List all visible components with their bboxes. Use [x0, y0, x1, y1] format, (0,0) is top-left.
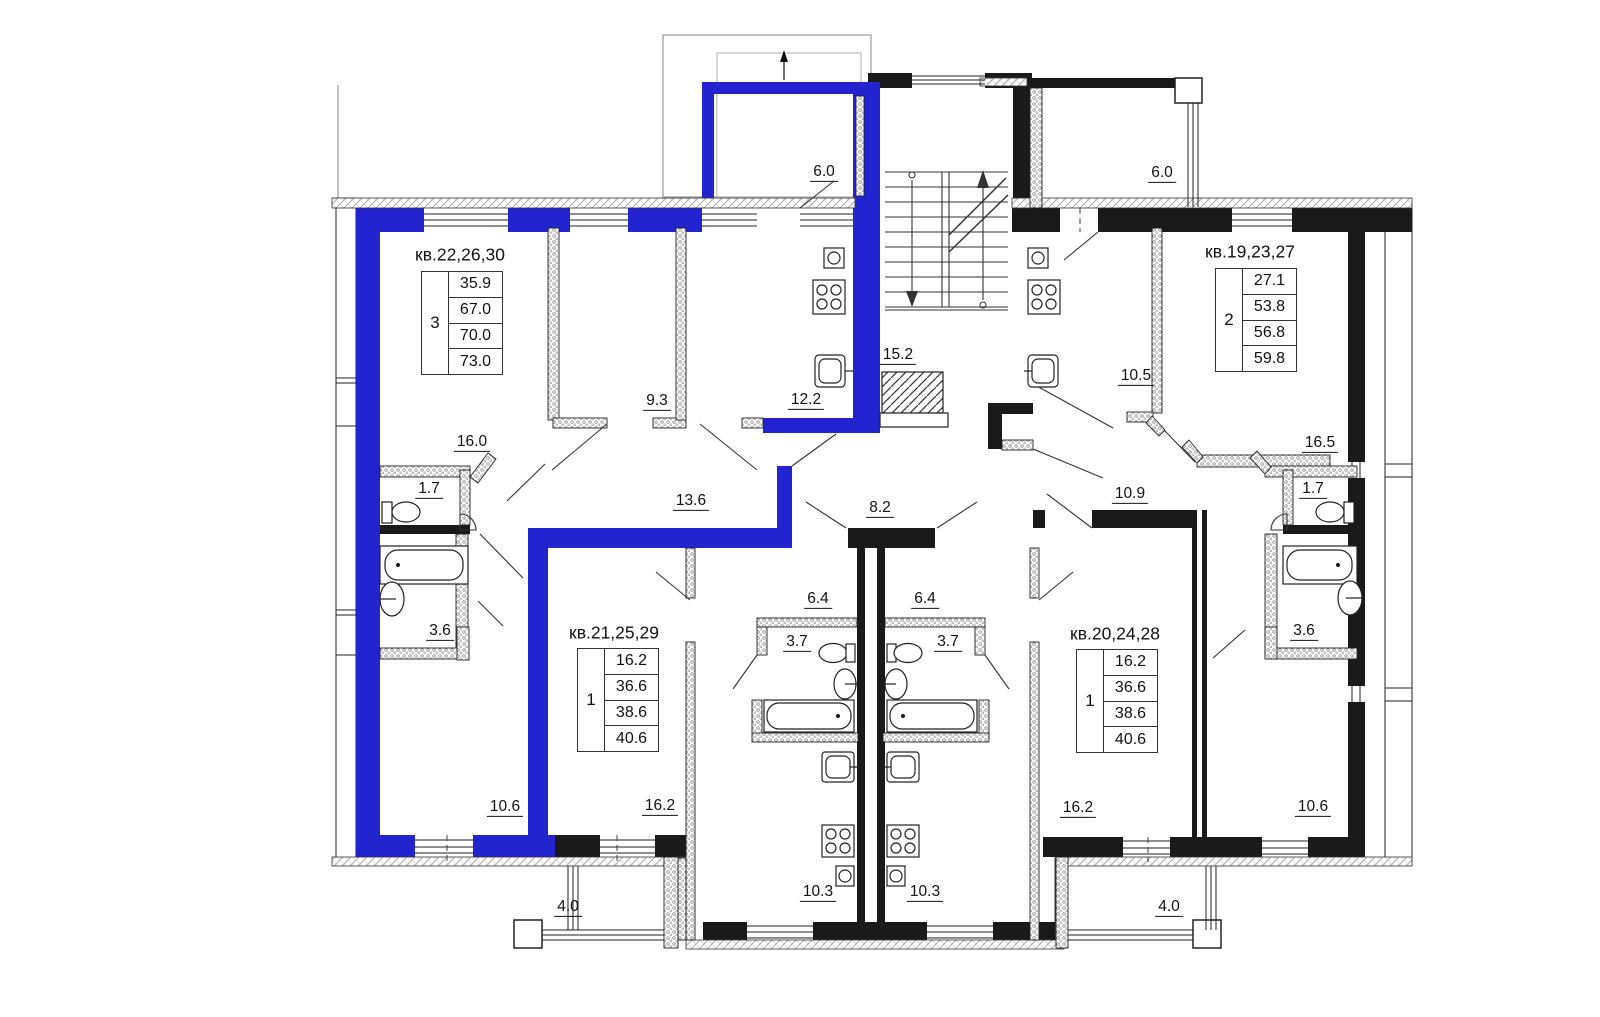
stair-shaft-hatch — [882, 372, 943, 413]
floor-plan: 6.0 6.0 15.2 9.3 12.2 16.0 1.7 13.6 8.2 … — [0, 0, 1600, 1017]
area-value: 38.6 — [1104, 702, 1157, 728]
apartment-number-label: кв.21,25,29 — [569, 623, 659, 644]
area-value: 67.0 — [449, 298, 502, 324]
apartment-area-table: 2 27.1 53.8 56.8 59.8 — [1215, 268, 1297, 372]
room-area-label-balcony-top-right: 6.0 — [1148, 165, 1176, 183]
stove-icon — [822, 825, 854, 857]
room-area-label-apt22-living: 16.0 — [454, 434, 490, 452]
area-value: 40.6 — [605, 726, 658, 751]
balcony-wall-liner — [856, 96, 864, 196]
room-area-label-apt21-kitchen: 10.3 — [800, 884, 836, 902]
floor-plan-drawing — [0, 0, 1600, 1017]
room-area-label-balcony-bottom-right: 4.0 — [1155, 899, 1183, 917]
toilet-icon — [819, 644, 847, 663]
area-value: 70.0 — [449, 324, 502, 350]
room-area-label-apt19-living: 16.5 — [1302, 435, 1338, 453]
area-value: 36.6 — [605, 675, 658, 701]
room-area-label-balcony-top-left: 6.0 — [810, 164, 838, 182]
room-count-value: 3 — [422, 272, 449, 374]
apartment-area-table: 1 16.2 36.6 38.6 40.6 — [577, 648, 659, 752]
room-area-label-apt21-living: 16.2 — [642, 798, 678, 816]
area-value: 59.8 — [1243, 346, 1296, 371]
apartment-number-label: кв.22,26,30 — [415, 245, 505, 266]
stove-icon — [887, 825, 919, 857]
room-area-label-apt19-bedroom: 10.6 — [1295, 799, 1331, 817]
room-area-label-apt22-room: 9.3 — [643, 393, 671, 411]
area-value: 53.8 — [1243, 295, 1296, 321]
entrance-canopy — [338, 35, 871, 198]
room-area-label-corridor: 8.2 — [866, 500, 894, 518]
room-area-label-apt19-kitchen: 10.5 — [1118, 368, 1154, 386]
room-area-label-apt21-bath: 3.7 — [783, 634, 811, 652]
stair-landing-step — [880, 413, 948, 427]
stove-icon — [1028, 280, 1060, 314]
stair-up-arrow — [977, 170, 989, 188]
stove-icon — [813, 280, 845, 314]
area-value: 16.2 — [1104, 650, 1157, 676]
area-value: 16.2 — [605, 649, 658, 675]
room-count-value: 1 — [578, 649, 605, 751]
room-area-label-apt22-bedroom: 10.6 — [487, 799, 523, 817]
area-value: 38.6 — [605, 701, 658, 727]
staircase — [885, 172, 1008, 310]
room-count-value: 1 — [1077, 650, 1104, 752]
room-area-label-apt21-hall: 6.4 — [804, 591, 832, 609]
toilet-icon — [894, 644, 922, 663]
area-value: 35.9 — [449, 272, 502, 298]
room-area-label-apt22-bath: 3.6 — [426, 623, 454, 641]
room-area-label-apt20-living: 16.2 — [1060, 800, 1096, 818]
room-area-label-apt22-hall: 13.6 — [673, 493, 709, 511]
exit-arrow-icon — [780, 50, 788, 62]
room-count-value: 2 — [1216, 269, 1243, 371]
toilet-icon — [382, 502, 392, 523]
apartment-area-table: 1 16.2 36.6 38.6 40.6 — [1076, 649, 1158, 753]
room-area-label-apt22-wc: 1.7 — [415, 481, 443, 499]
area-value: 27.1 — [1243, 269, 1296, 295]
apartment-number-label: кв.19,23,27 — [1205, 242, 1295, 263]
room-area-label-apt22-kitchen: 12.2 — [788, 392, 824, 410]
room-area-label-apt19-bath: 3.6 — [1290, 623, 1318, 641]
apartment-area-table: 3 35.9 67.0 70.0 73.0 — [421, 271, 503, 375]
area-value: 73.0 — [449, 349, 502, 374]
kitchen-fixtures — [813, 248, 1060, 886]
area-value: 56.8 — [1243, 321, 1296, 347]
room-area-label-apt20-hall: 6.4 — [911, 591, 939, 609]
toilet-icon — [1316, 502, 1344, 522]
stair-down-arrow — [906, 291, 918, 307]
area-value: 36.6 — [1104, 676, 1157, 702]
room-area-label-apt20-bath: 3.7 — [934, 634, 962, 652]
room-area-label-balcony-bottom-left: 4.0 — [554, 899, 582, 917]
room-area-label-apt20-kitchen: 10.3 — [907, 884, 943, 902]
area-value: 40.6 — [1104, 727, 1157, 752]
apartment-number-label: кв.20,24,28 — [1070, 624, 1160, 645]
room-area-label-apt19-hall: 10.9 — [1112, 486, 1148, 504]
room-area-label-stair-landing: 15.2 — [880, 347, 916, 365]
room-area-label-apt19-wc: 1.7 — [1299, 481, 1327, 499]
